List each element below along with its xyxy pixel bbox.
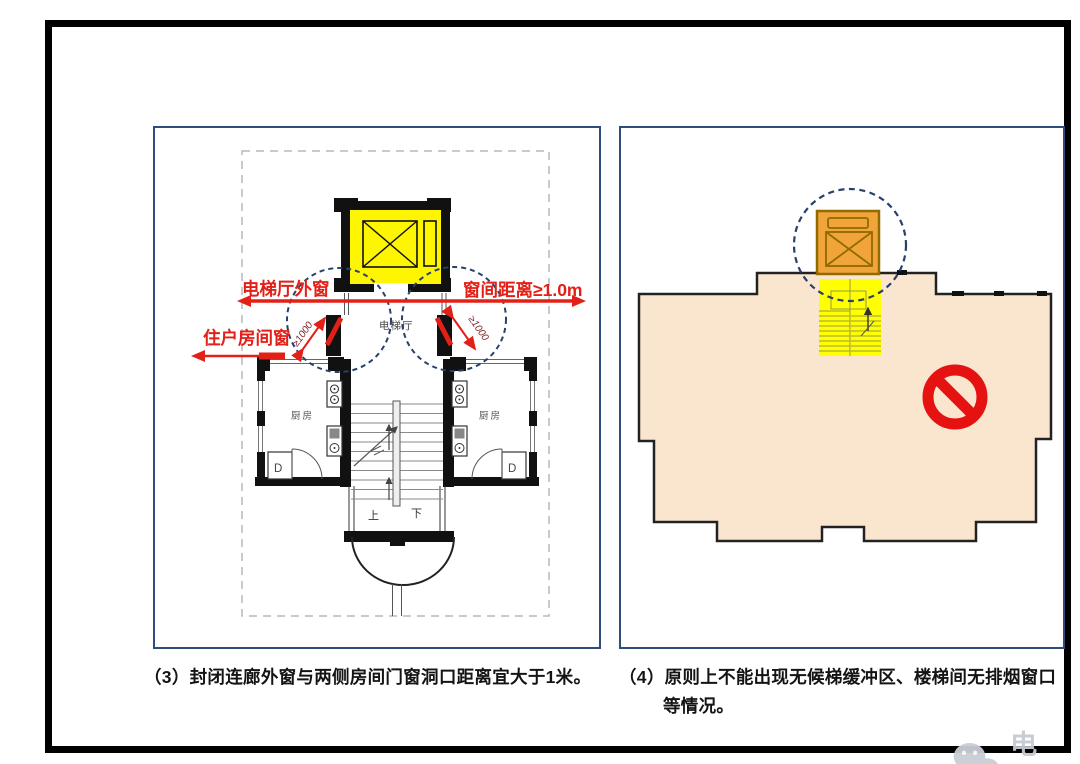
door-arc-left <box>292 449 322 479</box>
caption-4-line2: 等情况。 <box>619 692 1071 721</box>
kitchen-right-label: 厨房 <box>479 410 502 422</box>
sink-icon <box>327 426 342 456</box>
floor-plan-panel-left: 电梯厅 厨房 <box>153 126 601 649</box>
caption-3-text: （3）封闭连廊外窗与两侧房间门窗洞口距离宜大于1米。 <box>144 667 591 687</box>
caption-4-line1: （4）原则上不能出现无候梯缓冲区、楼梯间无排烟窗口 <box>619 663 1071 692</box>
sink-icon <box>452 426 467 456</box>
hall-label: 电梯厅 <box>379 319 414 332</box>
stairwell: 上 下 <box>344 401 454 616</box>
kitchen-right: 厨房 D <box>443 357 539 487</box>
elevator-shaft <box>334 198 451 292</box>
caption-item-4: （4）原则上不能出现无候梯缓冲区、楼梯间无排烟窗口 等情况。 <box>619 663 1071 721</box>
resident-window-label: 住户房间窗 <box>203 328 291 348</box>
duct-label: D <box>274 463 282 475</box>
floor-plan-drawing: 电梯厅 厨房 <box>155 128 599 647</box>
stove-icon <box>452 381 467 407</box>
caption-item-3: （3）封闭连廊外窗与两侧房间门窗洞口距离宜大于1米。 <box>144 663 616 692</box>
stair-center-rail <box>393 401 400 506</box>
window-distance-label: 窗间距离≥1.0m <box>463 280 583 300</box>
kitchen-left-label: 厨房 <box>291 410 314 422</box>
stove-icon <box>327 381 342 407</box>
door-arc-right <box>472 449 502 479</box>
hall-window-label: 电梯厅外窗 <box>242 279 330 299</box>
slide: 电梯厅 厨房 <box>0 0 1080 764</box>
elevator-shaft-orange <box>817 211 879 274</box>
stairs-down-label: 下 <box>411 508 422 520</box>
kitchen-left: 厨房 D <box>255 357 351 487</box>
stair-zone <box>819 279 881 356</box>
building-plan-panel-right <box>619 126 1065 649</box>
duct-label: D <box>508 463 516 475</box>
dimension-label-right: ≥1000 <box>466 314 491 343</box>
wechat-watermark: 电梯 <box>950 723 1064 764</box>
watermark-text: 电梯 <box>1010 723 1064 764</box>
hall-side-windows <box>345 293 447 315</box>
slide-border-frame: 电梯厅 厨房 <box>45 20 1071 753</box>
wechat-icon <box>950 739 1002 764</box>
building-outline-drawing <box>621 128 1063 647</box>
dimension-label-left: ≥1000 <box>290 320 315 349</box>
stairs-up-label: 上 <box>368 509 379 522</box>
